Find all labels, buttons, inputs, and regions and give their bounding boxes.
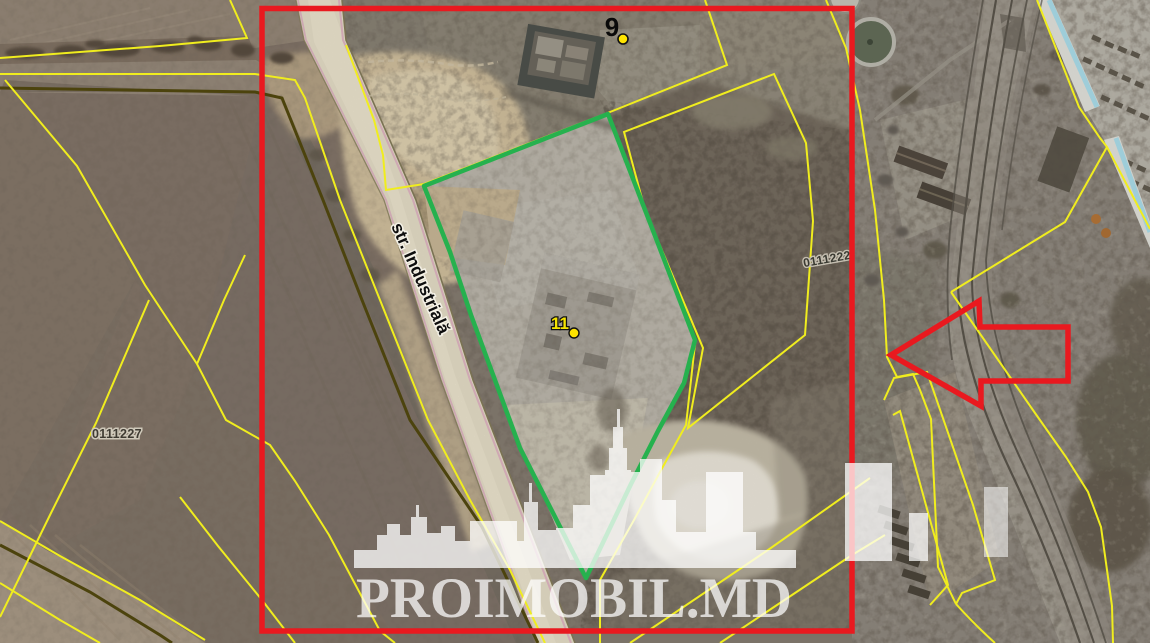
svg-text:11: 11: [551, 314, 569, 333]
svg-text:PROIMOBIL.MD: PROIMOBIL.MD: [356, 567, 792, 630]
svg-text:0111227: 0111227: [92, 427, 142, 441]
svg-text:9: 9: [605, 12, 619, 42]
